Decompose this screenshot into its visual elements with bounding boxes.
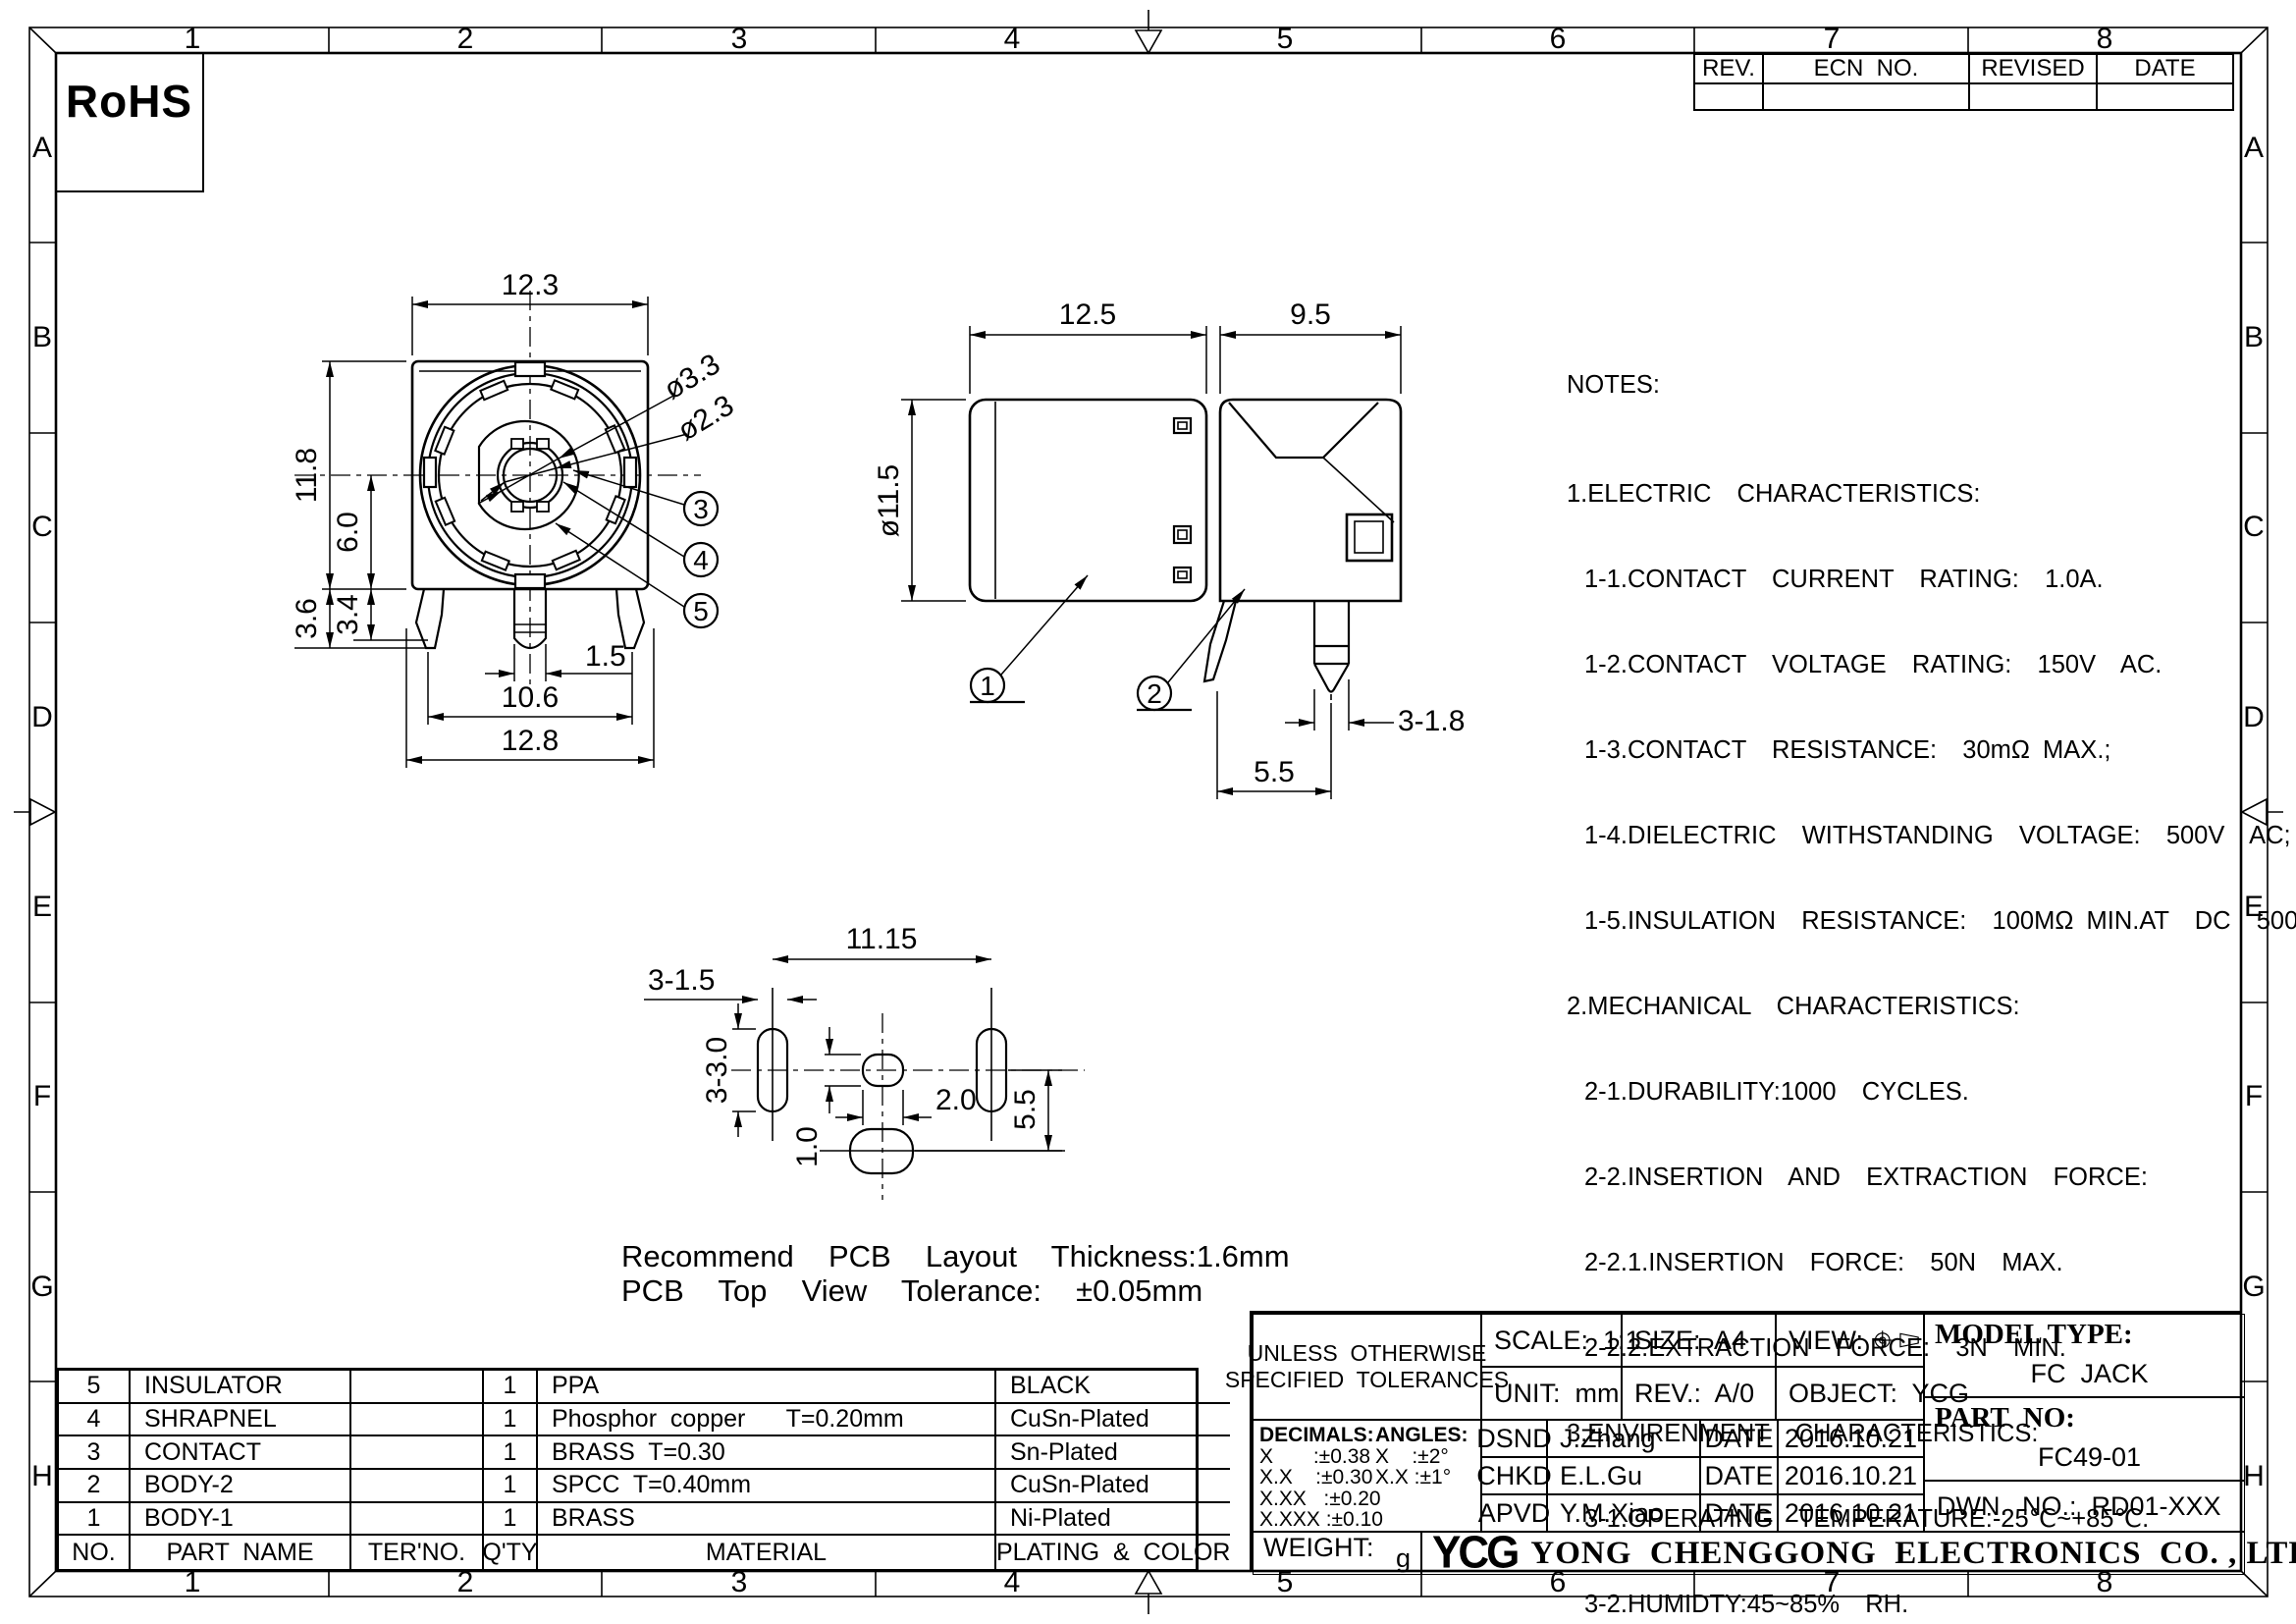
part-qty: 1 <box>484 1404 538 1437</box>
col-label: 3 <box>731 23 748 55</box>
part-name: SHRAPNEL <box>131 1404 351 1437</box>
row-label: A <box>2244 132 2264 164</box>
part-no-cell: PART NO: FC49-01 <box>1924 1397 2245 1481</box>
note-line: 1-3.CONTACT RESISTANCE: 30mΩ MAX.; <box>1567 736 2254 765</box>
part-name: INSULATOR <box>131 1371 351 1404</box>
front-callouts: 3 4 5 <box>556 470 718 627</box>
callout-4: 4 <box>693 545 709 575</box>
cone-frustum-icon <box>1900 1333 1918 1346</box>
part-terno <box>351 1470 484 1503</box>
col-label: 4 <box>1004 23 1021 55</box>
dim-11.15: 11.15 <box>846 923 918 955</box>
weight-cell: WEIGHT: g <box>1253 1532 1421 1575</box>
rev-header: REV. <box>1695 55 1764 84</box>
dim-d11.5: ø11.5 <box>873 464 905 538</box>
part-plating: BLACK <box>996 1371 1230 1404</box>
rohs-label: RoHS <box>56 75 202 128</box>
front-dims: 12.3 11.8 6.0 3.6 3.4 1.5 <box>291 269 739 768</box>
col-label: 5 <box>1277 23 1294 55</box>
rohs-box: RoHS <box>56 53 204 192</box>
callout-1: 1 <box>980 671 995 701</box>
view-cell: VIEW: <box>1776 1314 1924 1367</box>
part-material: Phosphor copper T=0.20mm <box>538 1404 996 1437</box>
row-label: E <box>32 891 52 923</box>
part-no-label: PART NO: <box>1935 1402 2075 1435</box>
note-line: 2-1.DURABILITY:1000 CYCLES. <box>1567 1078 2254 1107</box>
rev-header: DATE <box>2098 55 2232 84</box>
part-terno <box>351 1503 484 1537</box>
row-label: D <box>31 701 53 733</box>
apvd-role: APVD <box>1481 1494 1547 1532</box>
dim-11.8: 11.8 <box>291 448 323 503</box>
chkd-role: CHKD <box>1481 1457 1547 1494</box>
dim-6.0: 6.0 <box>332 512 364 553</box>
dim-1.0: 1.0 <box>791 1126 824 1167</box>
part-plating: Ni-Plated <box>996 1503 1230 1537</box>
title-block: UNLESS OTHERWISE SPECIFIED TOLERANCES DE… <box>1250 1311 2242 1572</box>
callout-2: 2 <box>1147 678 1162 709</box>
part-no: 5 <box>59 1371 131 1404</box>
side-dims: 12.5 9.5 ø11.5 3-1.8 5.5 <box>873 298 1465 799</box>
angles-label: ANGLES: <box>1375 1424 1468 1446</box>
pcb-caption-1: Recommend PCB Layout Thickness:1.6mm <box>621 1239 1290 1274</box>
part-no: 3 <box>59 1436 131 1470</box>
parts-header-plating: PLATING & COLOR <box>996 1536 1230 1569</box>
projection-symbols <box>1873 1325 1923 1356</box>
company-band: YCG YONG CHENGGONG ELECTRONICS CO. , LTD… <box>1421 1532 2245 1575</box>
note-line: 1-5.INSULATION RESISTANCE: 100MΩ MIN.AT … <box>1567 907 2254 936</box>
side-view: 12.5 9.5 ø11.5 3-1.8 5.5 1 <box>873 298 1465 799</box>
part-material: BRASS <box>538 1503 996 1537</box>
apvd-date-label: DATE <box>1700 1494 1778 1532</box>
part-no: 1 <box>59 1503 131 1537</box>
object-cell: OBJECT: YCG <box>1776 1367 1924 1420</box>
decimals-label: DECIMALS: <box>1259 1424 1374 1446</box>
part-qty: 1 <box>484 1470 538 1503</box>
row-label: G <box>30 1271 53 1303</box>
part-terno <box>351 1436 484 1470</box>
company-name: YONG CHENGGONG ELECTRONICS CO. , LTD. <box>1530 1536 2296 1572</box>
col-label: 6 <box>1550 23 1567 55</box>
model-type-cell: MODEL TYPE: FC JACK <box>1924 1314 2245 1397</box>
dim-10.6: 10.6 <box>502 681 559 714</box>
note-line: 2-2.1.INSERTION FORCE: 50N MAX. <box>1567 1249 2254 1277</box>
rev-empty-cell <box>1970 84 2098 109</box>
dim-12.5: 12.5 <box>1059 298 1116 331</box>
angles-values: X :±2° X.X :±1° <box>1375 1446 1468 1489</box>
shield-leg <box>1204 601 1236 681</box>
dim-5.5: 5.5 <box>1254 756 1295 788</box>
callout-3: 3 <box>693 494 709 524</box>
part-plating: CuSn-Plated <box>996 1404 1230 1437</box>
left-leg <box>416 589 444 648</box>
dim-pcb-5.5: 5.5 <box>1009 1089 1041 1130</box>
pcb-caption-2: PCB Top View Tolerance: ±0.05mm <box>621 1273 1202 1309</box>
col-label: 7 <box>1824 23 1841 55</box>
rev-empty-cell <box>1764 84 1970 109</box>
dim-3-1.5: 3-1.5 <box>648 964 715 997</box>
part-qty: 1 <box>484 1371 538 1404</box>
notes-title: NOTES: <box>1567 371 2254 400</box>
parts-header-terno: TER'NO. <box>351 1536 484 1569</box>
parts-header-qty: Q'TY <box>484 1536 538 1569</box>
rev-cell: REV.: A/0 <box>1622 1367 1776 1420</box>
note-line: 1-4.DIELECTRIC WITHSTANDING VOLTAGE: 500… <box>1567 822 2254 850</box>
tolerance-note: UNLESS OTHERWISE SPECIFIED TOLERANCES <box>1253 1314 1481 1420</box>
dim-2.0: 2.0 <box>935 1084 977 1116</box>
part-material: PPA <box>538 1371 996 1404</box>
scale-cell: SCALE: 1:1 <box>1481 1314 1622 1367</box>
size-cell: SIZE: A4 <box>1622 1314 1776 1367</box>
part-no: 2 <box>59 1470 131 1503</box>
rev-empty-cell <box>1695 84 1764 109</box>
col-label: 8 <box>2097 23 2113 55</box>
dim-12.8: 12.8 <box>502 725 559 757</box>
rev-header: ECN NO. <box>1764 55 1970 84</box>
pcb-dims: 11.15 3-1.5 3-3.0 1.0 2.0 <box>644 923 1062 1167</box>
dim-3-1.8: 3-1.8 <box>1398 705 1465 737</box>
dsnd-name: J.Zhang <box>1547 1420 1700 1457</box>
tolerance-note-line2: SPECIFIED TOLERANCES <box>1225 1367 1509 1393</box>
part-no: 4 <box>59 1404 131 1437</box>
parts-header-no: NO. <box>59 1536 131 1569</box>
part-material: SPCC T=0.40mm <box>538 1470 996 1503</box>
note-line: 1-1.CONTACT CURRENT RATING: 1.0A. <box>1567 566 2254 594</box>
chkd-date-label: DATE <box>1700 1457 1778 1494</box>
right-leg <box>616 589 644 648</box>
row-label: C <box>31 511 53 543</box>
part-name: BODY-2 <box>131 1470 351 1503</box>
col-label: 2 <box>457 23 474 55</box>
part-terno <box>351 1404 484 1437</box>
rev-header: REVISED <box>1970 55 2098 84</box>
pcb-view: 11.15 3-1.5 3-3.0 1.0 2.0 <box>644 923 1085 1200</box>
row-label: F <box>33 1080 51 1112</box>
row-label: A <box>32 132 52 164</box>
tolerance-note-line1: UNLESS OTHERWISE <box>1248 1340 1487 1367</box>
part-plating: Sn-Plated <box>996 1436 1230 1470</box>
dim-12.3: 12.3 <box>502 269 559 301</box>
dim-3.6: 3.6 <box>291 598 323 639</box>
weight-unit: g <box>1396 1543 1411 1574</box>
part-name: CONTACT <box>131 1436 351 1470</box>
apvd-name: Y.M.Xiao <box>1547 1494 1700 1532</box>
tolerance-values: DECIMALS:X :±0.38 X.X :±0.30 X.XX :±0.20… <box>1253 1420 1481 1532</box>
note-line: 1.ELECTRIC CHARACTERISTICS: <box>1567 480 2254 509</box>
dim-9.5: 9.5 <box>1290 298 1331 331</box>
row-label: H <box>31 1460 53 1492</box>
bottom-keying-notch <box>515 574 545 588</box>
part-terno <box>351 1371 484 1404</box>
note-line: 1-2.CONTACT VOLTAGE RATING: 150V AC. <box>1567 651 2254 679</box>
part-name: BODY-1 <box>131 1503 351 1537</box>
revision-table: REV. ECN NO. REVISED DATE <box>1693 53 2234 111</box>
parts-header-name: PART NAME <box>131 1536 351 1569</box>
note-line: 2.MECHANICAL CHARACTERISTICS: <box>1567 993 2254 1021</box>
dsnd-role: DSND <box>1481 1420 1547 1457</box>
model-type-value: FC JACK <box>2030 1359 2148 1389</box>
dim-3.4: 3.4 <box>332 594 364 635</box>
part-no-value: FC49-01 <box>2038 1442 2141 1473</box>
col-label: 1 <box>185 23 201 55</box>
dim-3-3.0: 3-3.0 <box>701 1037 733 1104</box>
dwn-no-cell: DWN. NO.: RD01-XXX <box>1924 1481 2245 1532</box>
chkd-name: E.L.Gu <box>1547 1457 1700 1494</box>
part-qty: 1 <box>484 1436 538 1470</box>
weight-label: WEIGHT: <box>1263 1533 1374 1563</box>
front-view: 12.3 11.8 6.0 3.6 3.4 1.5 <box>291 269 739 768</box>
parts-table: 5 INSULATOR 1 PPA BLACK 4 SHRAPNEL 1 Pho… <box>56 1368 1199 1572</box>
part-qty: 1 <box>484 1503 538 1537</box>
part-material: BRASS T=0.30 <box>538 1436 996 1470</box>
apvd-date: 2016.10.21 <box>1778 1494 1924 1532</box>
part-plating: CuSn-Plated <box>996 1470 1230 1503</box>
model-type-label: MODEL TYPE: <box>1935 1319 2133 1351</box>
rev-empty-cell <box>2098 84 2232 109</box>
drawing-sheet: 1 2 3 4 5 6 7 8 1 2 3 4 5 6 7 8 A B C D … <box>0 0 2296 1624</box>
unit-cell: UNIT: mm <box>1481 1367 1622 1420</box>
decimals-values: X :±0.38 X.X :±0.30 X.XX :±0.20 X.XXX :±… <box>1259 1446 1375 1531</box>
top-keying-notch <box>515 362 545 376</box>
dim-1.5: 1.5 <box>585 640 626 673</box>
row-label: B <box>32 321 52 353</box>
callout-5: 5 <box>693 596 709 626</box>
note-line: 2-2.INSERTION AND EXTRACTION FORCE: <box>1567 1164 2254 1192</box>
parts-header-material: MATERIAL <box>538 1536 996 1569</box>
side-pin <box>1314 601 1349 700</box>
chkd-date: 2016.10.21 <box>1778 1457 1924 1494</box>
dsnd-date: 2016.10.21 <box>1778 1420 1924 1457</box>
dsnd-date-label: DATE <box>1700 1420 1778 1457</box>
note-line: 3-2.HUMIDTY:45~85% RH. <box>1567 1591 2254 1619</box>
third-angle-target-icon <box>1873 1330 1892 1349</box>
ycg-logo: YCG <box>1432 1528 1517 1580</box>
